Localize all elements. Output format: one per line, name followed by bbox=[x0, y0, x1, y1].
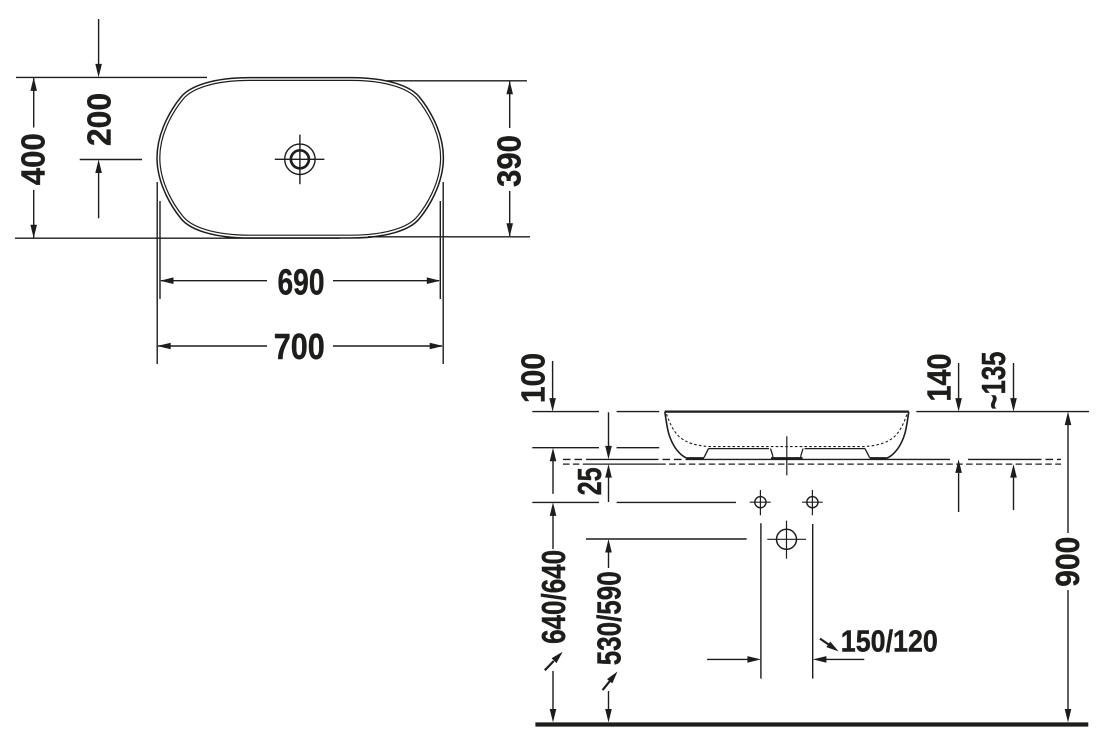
svg-text:690: 690 bbox=[278, 262, 325, 303]
svg-text:400: 400 bbox=[15, 133, 52, 185]
svg-text:~135: ~135 bbox=[975, 352, 1012, 410]
svg-text:700: 700 bbox=[274, 326, 325, 367]
svg-text:140: 140 bbox=[921, 354, 958, 402]
svg-text:530/590: 530/590 bbox=[591, 571, 628, 665]
svg-text:640/640: 640/640 bbox=[535, 550, 572, 644]
svg-text:200: 200 bbox=[80, 93, 117, 146]
svg-text:150/120: 150/120 bbox=[841, 624, 938, 659]
svg-text:25: 25 bbox=[571, 467, 608, 495]
svg-text:900: 900 bbox=[1049, 537, 1086, 587]
svg-text:100: 100 bbox=[515, 353, 552, 403]
svg-text:390: 390 bbox=[491, 135, 528, 187]
